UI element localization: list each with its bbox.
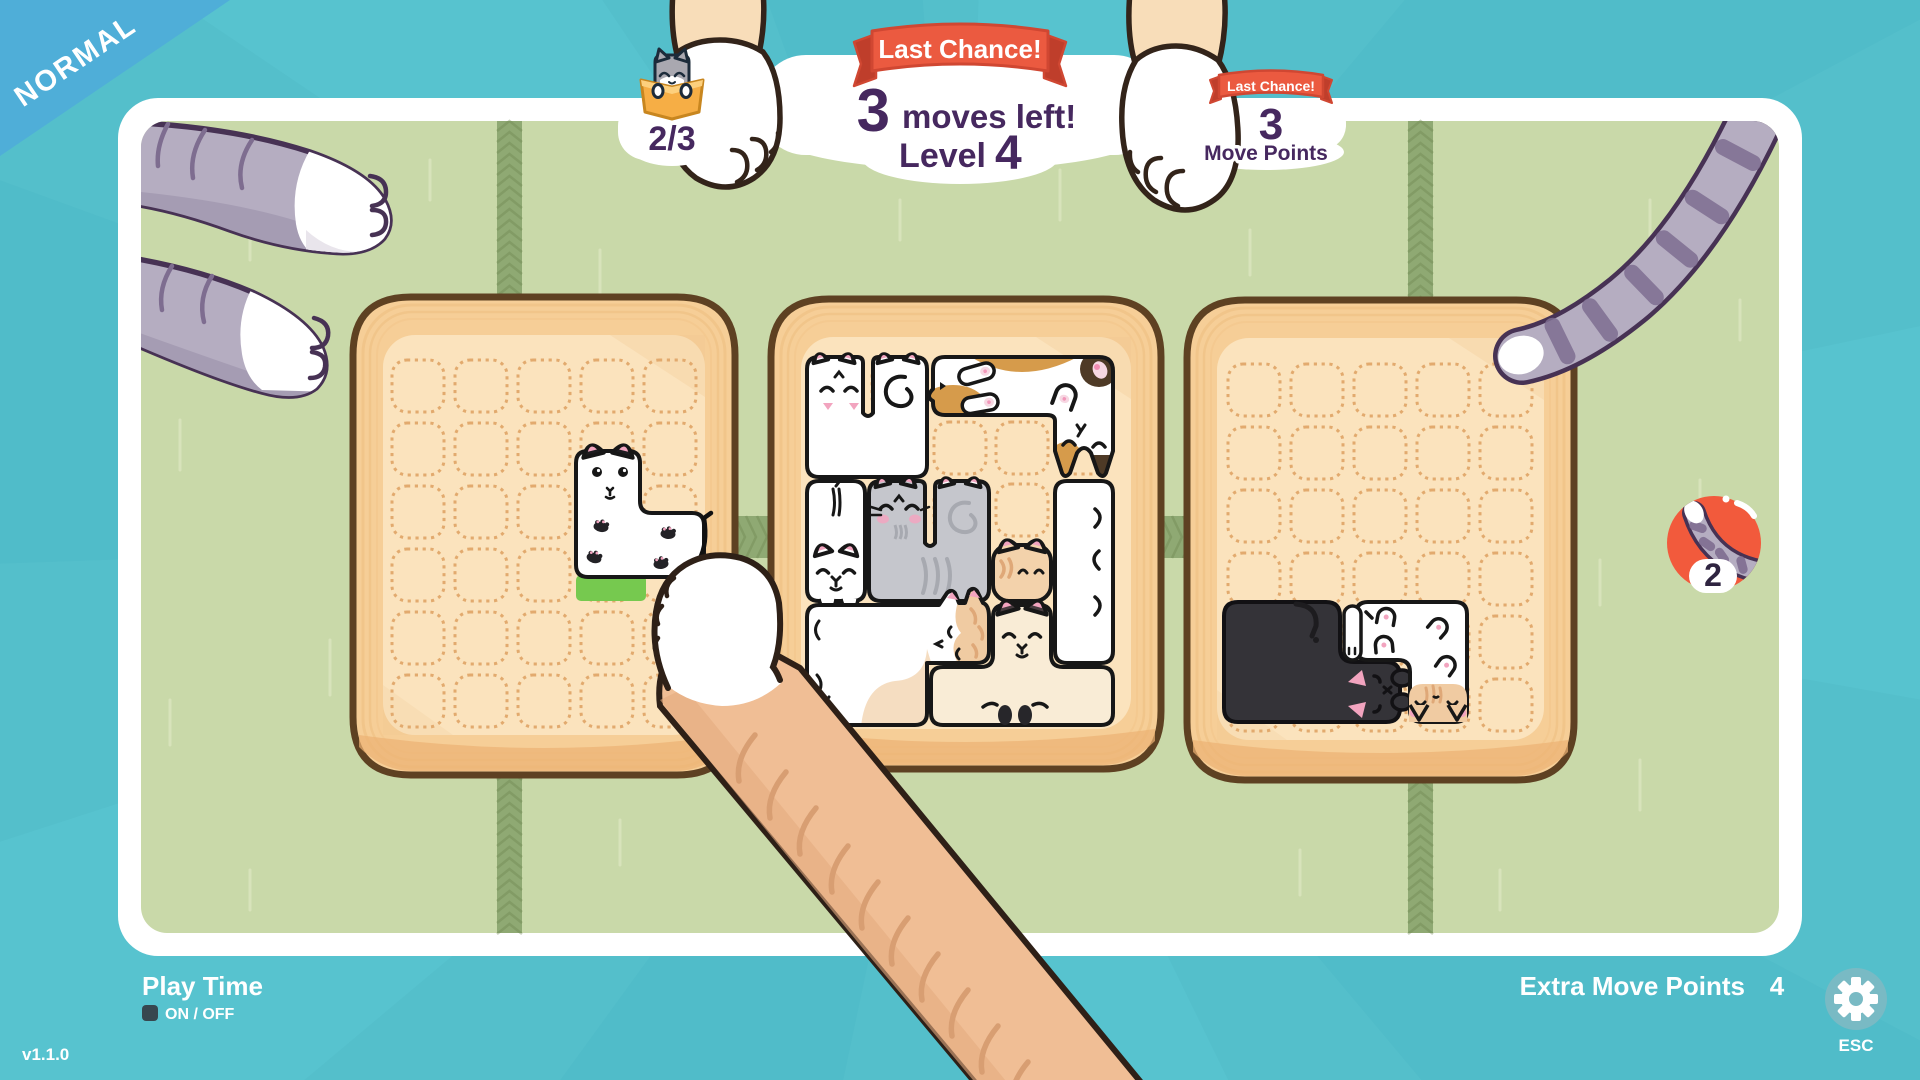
svg-text:ESC: ESC: [1839, 1036, 1874, 1055]
svg-text:2/3: 2/3: [648, 120, 695, 158]
svg-text:2: 2: [1704, 557, 1722, 593]
svg-text:moves left!: moves left!: [902, 98, 1076, 135]
svg-text:3: 3: [857, 77, 890, 144]
svg-text:Play Time: Play Time: [142, 971, 263, 1001]
svg-text:Move Points: Move Points: [1204, 142, 1328, 165]
svg-text:Last Chance!: Last Chance!: [878, 34, 1041, 64]
svg-text:v1.1.0: v1.1.0: [22, 1045, 69, 1064]
svg-text:4: 4: [995, 127, 1022, 180]
svg-text:Extra Move Points: Extra Move Points: [1520, 971, 1745, 1001]
svg-text:Last Chance!: Last Chance!: [1227, 78, 1315, 94]
svg-text:Level: Level: [899, 137, 986, 175]
svg-text:4: 4: [1770, 971, 1785, 1001]
svg-text:ON / OFF: ON / OFF: [165, 1006, 235, 1023]
